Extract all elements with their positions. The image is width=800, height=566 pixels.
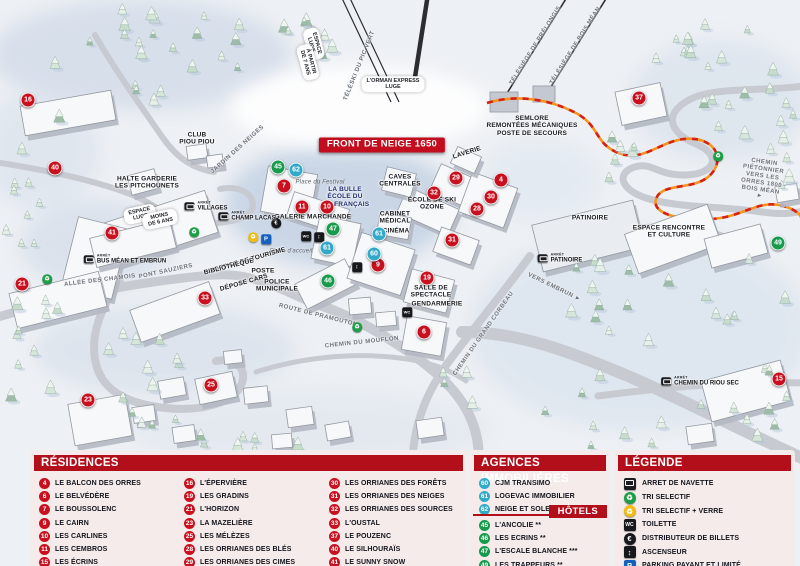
- map-marker-32: 32: [427, 186, 442, 201]
- map-label: ROUTE DE PRAMOUTON: [278, 303, 358, 329]
- list-item-label: LE SUNNY SNOW: [345, 559, 405, 566]
- list-item: 15LES ÉCRINS: [30, 556, 175, 566]
- marker-number-badge: 33: [329, 518, 340, 529]
- legende-item-label: TOILETTE: [642, 521, 677, 528]
- recycle-glass-icon: ♻: [248, 232, 258, 242]
- map-label: POSTE: [251, 267, 274, 274]
- list-item: 31LES ORRIANES DES NEIGES: [320, 490, 465, 503]
- bus-stop-name: CHEMIN DU RIOU SEC: [674, 380, 739, 386]
- map-marker-7: 7: [277, 179, 292, 194]
- residences-header: RÉSIDENCES: [34, 455, 463, 471]
- legende-header: LÉGENDE: [618, 455, 791, 471]
- bus-stop-label: ARRÊTVILLAGES: [197, 201, 227, 211]
- legende-icon-box: ↕: [623, 546, 636, 558]
- map-label: Place du Festival: [295, 180, 344, 187]
- map-marker-46: 46: [321, 274, 336, 289]
- marker-number-badge: 41: [329, 557, 340, 566]
- bus-stop-name: CHAMP LACAS: [231, 215, 275, 221]
- residences-columns: 4LE BALCON DES ORRES6LE BELVÉDÈRE7LE BOU…: [30, 473, 467, 566]
- list-item-label: LE BOUSSOLENC: [55, 506, 117, 513]
- map-marker-25: 25: [204, 378, 219, 393]
- list-item: 46LES ECRINS **: [470, 532, 610, 545]
- marker-number-badge: 28: [184, 544, 195, 555]
- map-label: SEMLORE REMONTÉES MÉCANIQUES POSTE DE SE…: [486, 115, 577, 137]
- list-item-label: NEIGE ET SOLEIL: [495, 506, 556, 513]
- list-item-label: CJM TRANSIMO: [495, 480, 550, 487]
- list-item: 4LE BALCON DES ORRES: [30, 477, 175, 490]
- agences-hotels-section: AGENCES IMMOBILIÈRES 60CJM TRANSIMO61LOG…: [470, 450, 610, 566]
- bus-stop-name: BUS MÉAN ET EMBRUN: [97, 258, 166, 264]
- bus-stop: ARRÊTBUS MÉAN ET EMBRUN: [84, 254, 166, 264]
- list-item: 32LES ORRIANES DES SOURCES: [320, 503, 465, 516]
- map-label: ESPACE LUGE: [123, 203, 158, 225]
- map-label: CHEMIN DU GRAND CORBEAU: [452, 291, 516, 378]
- list-item-label: LE BALCON DES ORRES: [55, 480, 141, 487]
- map-label: OFFICE DE TOURISME: [213, 246, 286, 274]
- legende-icon-box: [623, 478, 636, 490]
- list-item-label: LES ORRIANES DES BLÉS: [200, 546, 292, 553]
- map-marker-19: 19: [420, 271, 435, 286]
- list-item-label: LES MÉLÈZES: [200, 533, 250, 540]
- map-marker-30: 30: [484, 190, 499, 205]
- residences-column-2: 16L'ÉPERVIÈRE19LES GRADINS21L'HORIZON23L…: [175, 477, 320, 566]
- residences-column-3: 30LES ORRIANES DES FORÊTS31LES ORRIANES …: [320, 477, 465, 566]
- recycle-icon: ♻: [189, 227, 199, 237]
- list-item-label: L'ESCALE BLANCHE ***: [495, 548, 578, 555]
- map-marker-49: 49: [771, 236, 786, 251]
- list-item-label: LES ORRIANES DES FORÊTS: [345, 480, 446, 487]
- recycle-icon: ♻: [624, 492, 636, 504]
- marker-number-badge: 37: [329, 531, 340, 542]
- bus-icon: [184, 202, 194, 210]
- marker-number-badge: 29: [184, 557, 195, 566]
- marker-number-badge: 4: [39, 478, 50, 489]
- legende-item-label: PARKING PAYANT ET LIMITÉ: [642, 562, 741, 566]
- list-item-label: L'HORIZON: [200, 506, 239, 513]
- list-item-label: LES ORRIANES DES SOURCES: [345, 506, 453, 513]
- bus-stop: ARRÊTCHAMP LACAS: [218, 211, 275, 221]
- legende-item-label: TRI SELECTIF + VERRE: [642, 508, 723, 515]
- map-marker-40: 40: [48, 161, 63, 176]
- recycle-icon: ♻: [713, 151, 723, 161]
- bus-icon: [84, 255, 94, 263]
- legende-item: €DISTRIBUTEUR DE BILLETS: [614, 532, 795, 546]
- recycle-icon: ♻: [42, 274, 52, 284]
- map-marker-33: 33: [198, 291, 213, 306]
- legende-item: PPARKING PAYANT ET LIMITÉ: [614, 559, 795, 566]
- map-label: DÉPOSE CARS: [219, 273, 269, 294]
- list-item-label: LES ORRIANES DES NEIGES: [345, 493, 445, 500]
- legende-item: ♻TRI SELECTIF + VERRE: [614, 504, 795, 518]
- map-label: POLICE MUNICIPALE: [256, 279, 298, 294]
- legende-list: ARRET DE NAVETTE♻TRI SELECTIF♻TRI SELECT…: [614, 473, 795, 566]
- bus-stop: ARRÊTPATINOIRE: [538, 253, 583, 263]
- marker-number-badge: 46: [479, 533, 490, 544]
- bus-stop: ARRÊTCHEMIN DU RIOU SEC: [661, 376, 739, 386]
- marker-number-badge: 61: [479, 491, 490, 502]
- list-item: 41LE SUNNY SNOW: [320, 556, 465, 566]
- bus-stop-label: ARRÊTCHAMP LACAS: [231, 211, 275, 221]
- map-marker-60: 60: [367, 247, 382, 262]
- legende-icon-box: ♻: [623, 492, 636, 504]
- marker-number-badge: 9: [39, 518, 50, 529]
- map-label: CINÉMA: [383, 227, 410, 234]
- bus-stop-label: ARRÊTCHEMIN DU RIOU SEC: [674, 376, 739, 386]
- map-label: VERS EMBRUN ►: [526, 272, 582, 304]
- resort-map-page: FRONT DE NEIGE 1650L'ORMAN EXPRESS LUGEE…: [0, 0, 800, 566]
- list-item: 40LE SILHOURAÏS: [320, 543, 465, 556]
- toilet-icon: WC: [301, 231, 311, 241]
- bus-stop-name: PATINOIRE: [551, 257, 583, 263]
- map-label: JARDIN DES NEIGES: [210, 124, 266, 175]
- map-marker-37: 37: [632, 91, 647, 106]
- list-item: 7LE BOUSSOLENC: [30, 503, 175, 516]
- legende-item: ARRET DE NAVETTE: [614, 477, 795, 491]
- bus-icon: [538, 254, 548, 262]
- map-marker-4: 4: [494, 173, 509, 188]
- list-item-label: LES CEMBROS: [55, 546, 107, 553]
- marker-number-badge: 16: [184, 478, 195, 489]
- list-item: 61LOGEVAC IMMOBILIER: [470, 490, 610, 503]
- marker-number-badge: 10: [39, 531, 50, 542]
- map-marker-31: 31: [445, 233, 460, 248]
- list-item-label: L'ÉPERVIÈRE: [200, 480, 247, 487]
- marker-number-badge: 6: [39, 491, 50, 502]
- marker-number-badge: 49: [479, 560, 490, 566]
- list-item-label: LA MAZELIÈRE: [200, 520, 253, 527]
- bus-stop-label: ARRÊTPATINOIRE: [551, 253, 583, 263]
- recycle-icon: ♻: [352, 322, 362, 332]
- list-item: 11LES CEMBROS: [30, 543, 175, 556]
- list-item-label: LES ECRINS **: [495, 535, 546, 542]
- list-item-label: L'OUSTAL: [345, 520, 380, 527]
- list-item-label: LE POUZENC: [345, 533, 391, 540]
- legende-icon-box: ♻: [623, 505, 636, 517]
- list-item-label: LOGEVAC IMMOBILIER: [495, 493, 575, 500]
- map-marker-61: 61: [372, 227, 387, 242]
- marker-number-badge: 7: [39, 504, 50, 515]
- legende-item-label: ARRET DE NAVETTE: [642, 480, 713, 487]
- map-label: GALERIE MARCHANDE: [275, 213, 352, 220]
- list-item-label: L'ANCOLIE **: [495, 522, 541, 529]
- list-item-label: LES TRAPPEURS **: [495, 562, 563, 566]
- legende-item-label: DISTRIBUTEUR DE BILLETS: [642, 535, 739, 542]
- map-label: CAVES CENTRALES: [379, 174, 421, 189]
- hotels-list: 45L'ANCOLIE **46LES ECRINS **47L'ESCALE …: [470, 519, 610, 566]
- list-item-label: LE BELVÉDÈRE: [55, 493, 109, 500]
- map-label: MOINS DE 6 ANS: [141, 208, 179, 231]
- map-label: ESPACE LUGE: [302, 26, 325, 61]
- map-marker-6: 6: [417, 325, 432, 340]
- residences-section: RÉSIDENCES 4LE BALCON DES ORRES6LE BELVÉ…: [30, 450, 467, 566]
- map-marker-15: 15: [772, 372, 787, 387]
- map-label: BIBLIOTHÈQUE: [203, 257, 255, 277]
- bus-stop: ARRÊTVILLAGES: [184, 201, 227, 211]
- legende-section: LÉGENDE ARRET DE NAVETTE♻TRI SELECTIF♻TR…: [614, 450, 795, 566]
- atm-icon: €: [624, 533, 636, 545]
- map-marker-41: 41: [105, 226, 120, 241]
- map-label: CLUB PIOU PIOU: [179, 132, 214, 147]
- front-de-neige-banner: FRONT DE NEIGE 1650: [319, 138, 445, 153]
- bus-stop-name: VILLAGES: [197, 205, 227, 211]
- legende-icon-box: €: [623, 533, 636, 545]
- map-marker-61: 61: [320, 241, 335, 256]
- map-label: SALLE DE SPECTACLE: [411, 285, 452, 300]
- marker-number-badge: 32: [329, 504, 340, 515]
- list-item: 49LES TRAPPEURS **: [470, 559, 610, 566]
- list-item-label: LE SILHOURAÏS: [345, 546, 400, 553]
- list-item: 47L'ESCALE BLANCHE ***: [470, 545, 610, 558]
- list-item: 19LES GRADINS: [175, 490, 320, 503]
- map-label: TÉLÉSIÈGE DE PRÉLONGIS: [509, 5, 563, 86]
- map-label: CABINET MÉDICAL: [379, 211, 410, 226]
- map-label: Place d'accueil: [270, 249, 313, 256]
- legende-item: WCTOILETTE: [614, 518, 795, 532]
- map-label: PONT SAUZIERS: [138, 263, 193, 281]
- legende-item-label: TRI SELECTIF: [642, 494, 690, 501]
- marker-number-badge: 45: [479, 520, 490, 531]
- marker-number-badge: 60: [479, 478, 490, 489]
- list-item: 6LE BELVÉDÈRE: [30, 490, 175, 503]
- list-item: 16L'ÉPERVIÈRE: [175, 477, 320, 490]
- list-item: 23LA MAZELIÈRE: [175, 517, 320, 530]
- map-marker-62: 62: [289, 163, 304, 178]
- toilet-icon: WC: [402, 307, 412, 317]
- map-label: PATINOIRE: [572, 214, 608, 221]
- map-marker-45: 45: [271, 160, 286, 175]
- hotels-header: HÔTELS: [549, 505, 607, 518]
- legend-panel: RÉSIDENCES 4LE BALCON DES ORRES6LE BELVÉ…: [0, 448, 800, 566]
- map-label: TÉLÉSKI DU PIC VERT: [343, 30, 377, 102]
- bus-icon: [218, 212, 228, 220]
- map-marker-47: 47: [326, 222, 341, 237]
- parking-icon: P: [261, 234, 271, 244]
- elevator-icon: ↕: [352, 262, 362, 272]
- list-item-label: LES ORRIANES DES CIMES: [200, 559, 295, 566]
- map-label: CHEMIN PIÉTONNIER VERS LES ORRES 1800 BO…: [739, 157, 786, 204]
- legende-icon-box: P: [623, 560, 636, 566]
- recycle-glass-icon: ♻: [624, 505, 636, 517]
- map-label: CHEMIN DU MOUFLON: [325, 336, 400, 351]
- bus-icon: [661, 377, 671, 385]
- agences-header: AGENCES IMMOBILIÈRES: [474, 455, 606, 471]
- map-marker-11: 11: [295, 200, 310, 215]
- list-item: 9LE CAIRN: [30, 517, 175, 530]
- list-item-label: LES CARLINES: [55, 533, 108, 540]
- parking-icon: P: [624, 560, 636, 566]
- list-item: 21L'HORIZON: [175, 503, 320, 516]
- list-item: 45L'ANCOLIE **: [470, 519, 610, 532]
- marker-number-badge: 23: [184, 518, 195, 529]
- map-marker-29: 29: [449, 171, 464, 186]
- map-label: ALLÉE DES CHAMOIS: [64, 273, 136, 289]
- map-label: TÉLÉSIÈGE DE BOIS MÉAN: [549, 6, 603, 86]
- list-item: 37LE POUZENC: [320, 530, 465, 543]
- marker-number-badge: 25: [184, 531, 195, 542]
- bus-stop-label: ARRÊTBUS MÉAN ET EMBRUN: [97, 254, 166, 264]
- bus-icon: [624, 478, 636, 490]
- elevator-icon: ↕: [624, 546, 636, 558]
- map-marker-16: 16: [21, 93, 36, 108]
- elevator-icon: ↕: [314, 232, 324, 242]
- map-marker-21: 21: [15, 277, 30, 292]
- list-item: 28LES ORRIANES DES BLÉS: [175, 543, 320, 556]
- map-marker-28: 28: [470, 202, 485, 217]
- map-label: HALTE GARDERIE LES PITCHOUNETS: [115, 176, 179, 191]
- toilet-icon: WC: [624, 519, 636, 531]
- marker-number-badge: 15: [39, 557, 50, 566]
- map-marker-10: 10: [320, 200, 335, 215]
- list-item-label: LES GRADINS: [200, 493, 249, 500]
- residences-column-1: 4LE BALCON DES ORRES6LE BELVÉDÈRE7LE BOU…: [30, 477, 175, 566]
- map-label: À PARTIR DE 7 ANS: [296, 43, 320, 81]
- list-item: 30LES ORRIANES DES FORÊTS: [320, 477, 465, 490]
- marker-number-badge: 31: [329, 491, 340, 502]
- list-item-label: LES ÉCRINS: [55, 559, 98, 566]
- list-item: 29LES ORRIANES DES CIMES: [175, 556, 320, 566]
- marker-number-badge: 19: [184, 491, 195, 502]
- marker-number-badge: 30: [329, 478, 340, 489]
- list-item: 33L'OUSTAL: [320, 517, 465, 530]
- list-item-label: LE CAIRN: [55, 520, 89, 527]
- legende-item-label: ASCENSEUR: [642, 549, 687, 556]
- list-item: 10LES CARLINES: [30, 530, 175, 543]
- marker-number-badge: 47: [479, 546, 490, 557]
- marker-number-badge: 21: [184, 504, 195, 515]
- map-marker-23: 23: [81, 393, 96, 408]
- list-item: 25LES MÉLÈZES: [175, 530, 320, 543]
- legende-item: ↕ASCENSEUR: [614, 545, 795, 559]
- legende-icon-box: WC: [623, 519, 636, 531]
- marker-number-badge: 40: [329, 544, 340, 555]
- map-label: L'ORMAN EXPRESS LUGE: [362, 76, 425, 92]
- legende-item: ♻TRI SELECTIF: [614, 491, 795, 505]
- marker-number-badge: 11: [39, 544, 50, 555]
- map-label: GENDARMERIE: [412, 300, 463, 307]
- map-label: LAVERIE: [452, 145, 482, 161]
- map-label: ESPACE RENCONTRE ET CULTURE: [633, 225, 705, 240]
